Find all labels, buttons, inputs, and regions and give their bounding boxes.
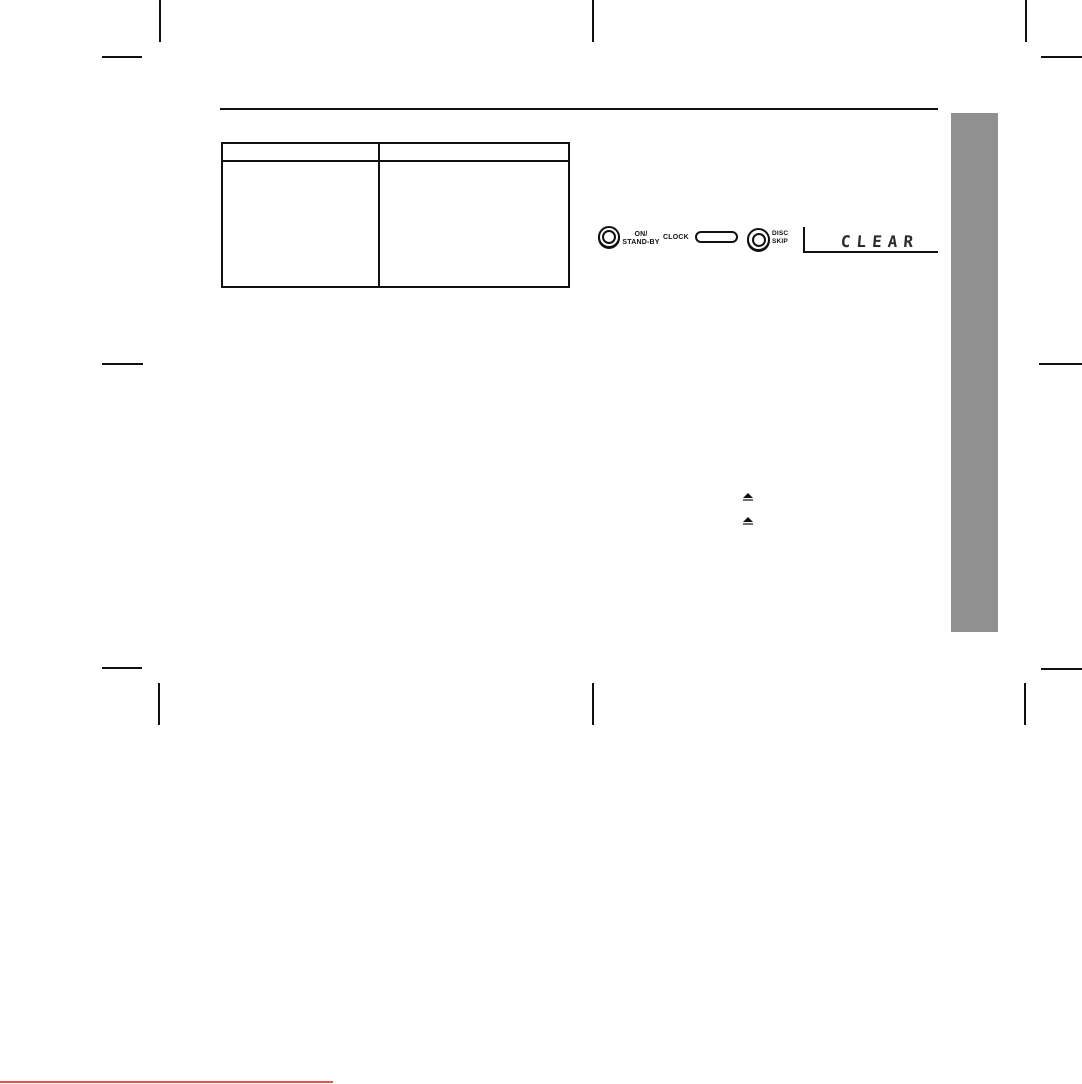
crop-mark-bottom-left-horizontal — [102, 667, 142, 669]
table-header-left — [227, 146, 373, 158]
manual-page: ON/STAND-BY CLOCK DISCSKIP CLEAR — [0, 0, 1082, 1084]
display-readout: CLEAR — [827, 233, 932, 250]
eject-icon-triangle — [743, 493, 753, 498]
notes-table — [221, 142, 570, 288]
eject-icon-bar — [743, 499, 753, 501]
table-header-divider — [223, 160, 568, 162]
footer-accent-line — [0, 1081, 333, 1083]
disc-skip-label: DISCSKIP — [772, 230, 788, 245]
crop-mark-top-left-horizontal — [102, 56, 142, 58]
on-standby-button-cap — [602, 230, 616, 244]
disc-skip-label-line2: SKIP — [772, 238, 788, 245]
crop-mark-bottom-right-horizontal — [1041, 668, 1082, 670]
on-standby-label-line2: STAND-BY — [622, 239, 659, 246]
clock-button — [695, 231, 738, 243]
disc-skip-button — [747, 228, 770, 251]
crop-mark-middle-left-horizontal — [102, 363, 143, 365]
page-top-rule — [220, 108, 938, 110]
crop-mark-top-right-vertical — [1025, 0, 1027, 42]
crop-mark-top-left-vertical — [159, 0, 161, 42]
crop-mark-middle-right-horizontal — [1039, 363, 1082, 365]
eject-icon-triangle — [743, 517, 753, 522]
on-standby-label: ON/STAND-BY — [619, 231, 663, 247]
table-header-right — [384, 146, 564, 158]
disc-skip-label-line1: DISC — [772, 230, 788, 237]
crop-mark-bottom-right-vertical — [1024, 683, 1026, 725]
eject-icon-bar — [743, 523, 753, 525]
on-standby-label-line1: ON/ — [634, 231, 647, 238]
display-window-bottom-edge — [803, 251, 938, 253]
crop-mark-top-right-horizontal — [1041, 56, 1082, 58]
on-standby-button — [598, 226, 620, 248]
crop-mark-bottom-center-vertical — [592, 683, 594, 725]
chapter-tab — [951, 113, 998, 632]
clock-label: CLOCK — [663, 234, 689, 242]
eject-icon — [743, 493, 753, 501]
display-window-left-edge — [803, 227, 805, 253]
eject-icon — [743, 517, 753, 525]
crop-mark-top-center-vertical — [592, 0, 594, 42]
table-column-divider — [378, 144, 380, 286]
disc-skip-button-cap — [752, 233, 766, 247]
crop-mark-bottom-left-vertical — [158, 683, 160, 725]
